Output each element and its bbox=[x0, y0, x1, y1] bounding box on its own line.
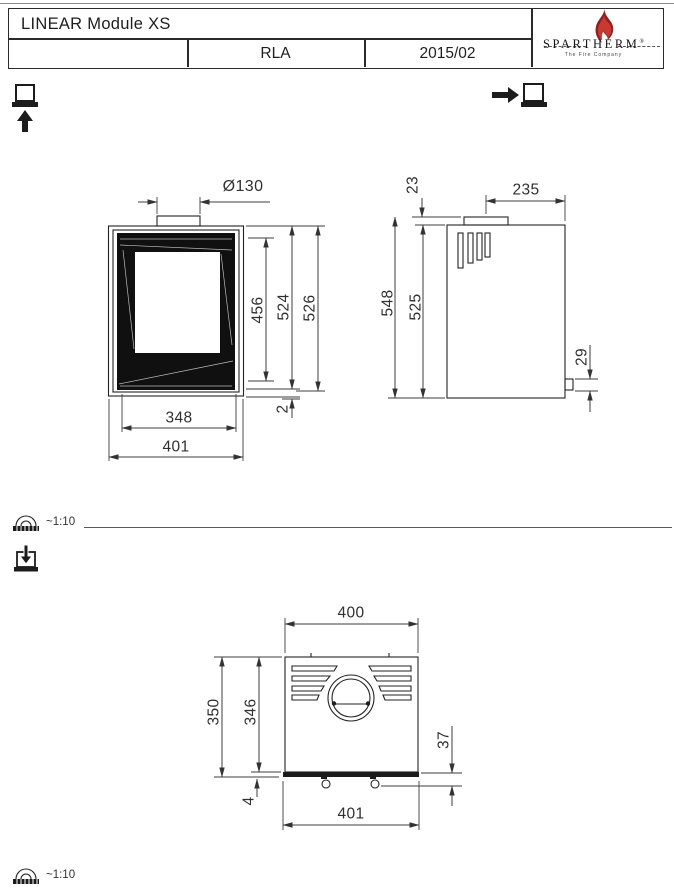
front-view-drawing bbox=[109, 216, 244, 396]
dim-body-height-side: 525 bbox=[408, 293, 424, 320]
dim-body-width-bottom: 400 bbox=[337, 605, 364, 621]
load-direction-icon bbox=[12, 543, 42, 573]
dim-front-edge: 4 bbox=[241, 796, 257, 805]
dim-outlet-height: 29 bbox=[574, 348, 590, 366]
technical-drawing-page: LINEAR Module XS RLA 2015/02 SPARTHERM® … bbox=[0, 0, 674, 893]
dim-flue-diameter: Ø130 bbox=[223, 179, 264, 195]
dim-flue-axis-to-rear: 235 bbox=[512, 182, 539, 198]
dim-door-height: 524 bbox=[276, 293, 292, 320]
side-view-drawing bbox=[447, 217, 573, 398]
dim-glass-width: 348 bbox=[165, 410, 192, 426]
scale-label-bottom: ~1:10 bbox=[46, 869, 75, 881]
dim-collar-offset: 23 bbox=[405, 176, 421, 194]
dim-total-height-front: 526 bbox=[302, 294, 318, 321]
drawing-canvas bbox=[0, 0, 674, 893]
scale-protractor-icon-bottom bbox=[12, 866, 42, 886]
dim-total-height-side: 548 bbox=[380, 289, 396, 316]
dim-total-depth: 350 bbox=[206, 698, 222, 725]
dim-body-depth: 346 bbox=[243, 698, 259, 725]
scale-label-top: ~1:10 bbox=[46, 516, 75, 528]
dim-glass-height: 456 bbox=[250, 296, 266, 323]
dim-bottom-edge: 2 bbox=[275, 404, 291, 413]
bottom-view-drawing bbox=[283, 653, 419, 788]
dim-body-width-front: 401 bbox=[162, 439, 189, 455]
dim-overall-width-bottom: 401 bbox=[337, 806, 364, 822]
dim-bracket-offset: 37 bbox=[436, 731, 452, 749]
section-divider-line bbox=[84, 527, 672, 528]
scale-protractor-icon-top bbox=[12, 513, 42, 533]
